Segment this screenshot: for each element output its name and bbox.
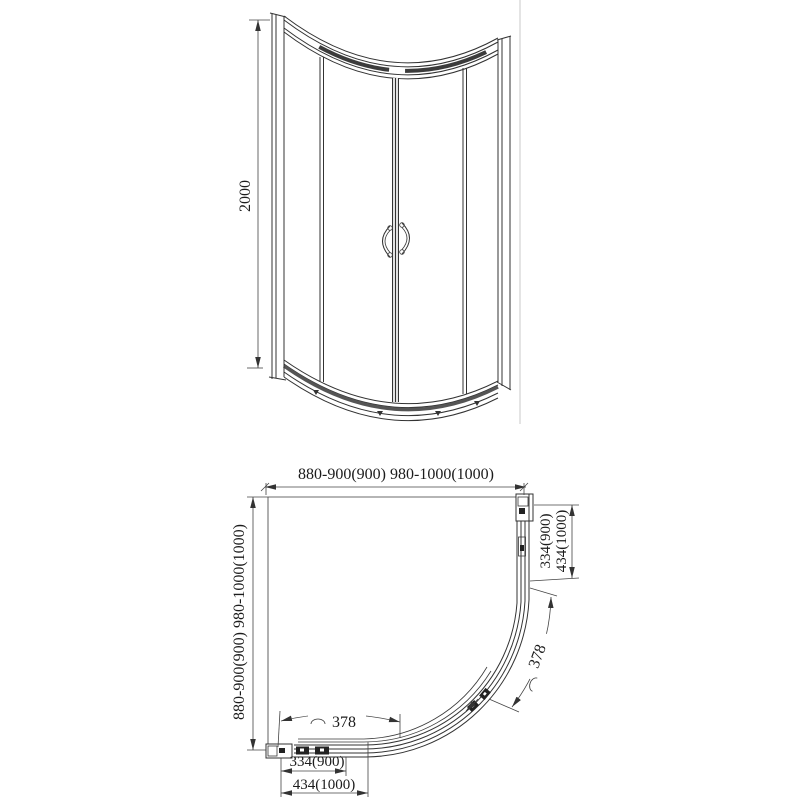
plan-width-dimension: 880-900(900) 980-1000(1000) — [261, 466, 528, 495]
side-panel-dimension: 334(900) 434(1000) — [530, 505, 579, 581]
door-handle-right — [400, 223, 410, 255]
drawing-canvas: 2000 — [0, 0, 800, 800]
front-elevation-view: 2000 — [237, 0, 520, 424]
sliding-door-glass-arcs — [298, 667, 491, 742]
left-frame-post — [269, 13, 286, 380]
fixed-panel-divider-right — [463, 68, 467, 394]
height-dimension: 2000 — [237, 20, 270, 368]
door-stiles — [393, 78, 399, 402]
wall-profile-bottom-left — [266, 744, 292, 758]
bottom-panel-width-900-label: 334(900) — [290, 754, 345, 770]
height-dimension-label: 2000 — [237, 180, 254, 212]
wall-profile-top-right — [516, 494, 533, 521]
fixed-panel-divider-left — [320, 57, 324, 382]
top-rail-roller-hatch — [284, 24, 498, 71]
side-panel-width-900-label: 334(900) — [538, 514, 554, 569]
plan-depth-dimension-label: 880-900(900) 980-1000(1000) — [231, 524, 248, 720]
door-magnet-strip — [519, 537, 526, 556]
technical-drawing: 2000 — [0, 0, 800, 800]
right-frame-post — [497, 36, 511, 390]
plan-depth-dimension: 880-900(900) 980-1000(1000) — [231, 497, 268, 750]
plan-view: 880-900(900) 980-1000(1000) 880-900(900)… — [231, 466, 579, 797]
door-handle-left — [383, 226, 393, 258]
top-rail — [284, 16, 498, 79]
plan-width-dimension-label: 880-900(900) 980-1000(1000) — [298, 466, 494, 483]
bottom-panel-width-1000-label: 434(1000) — [293, 777, 356, 793]
door-arc-dimension-right: 378 — [489, 588, 557, 712]
bottom-rail — [284, 360, 498, 421]
door-arc-dimension-bottom: 378 — [278, 710, 400, 747]
roller-bracket-arc-upper — [479, 688, 491, 700]
door-arc-length-bottom-label: 378 — [332, 714, 356, 731]
side-panel-width-1000-label: 434(1000) — [554, 510, 570, 573]
